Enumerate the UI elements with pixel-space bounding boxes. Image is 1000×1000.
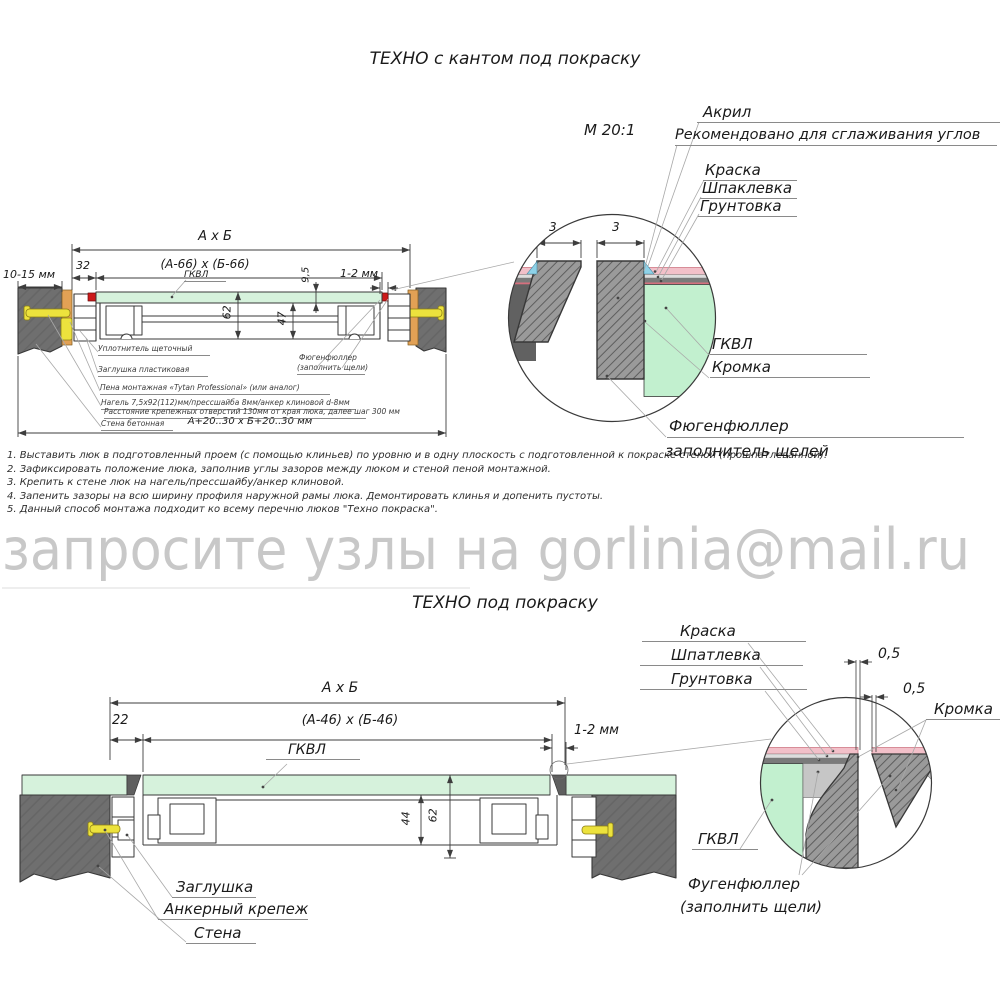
label-primer-bottom: Грунтовка bbox=[640, 671, 807, 690]
label-gkvl-detail-bottom: ГКВЛ bbox=[692, 831, 758, 850]
label-filler-top-1: Фюгенфюллер bbox=[667, 418, 964, 438]
label-gkvl-detail-top: ГКВЛ bbox=[710, 336, 867, 355]
label-filler-top-2: заполнитель щелей bbox=[665, 443, 829, 461]
callout-anchor-bottom: Анкерный крепеж bbox=[158, 901, 308, 920]
label-filler-bottom-1: Фугенфюллер bbox=[688, 876, 800, 893]
callout-foam: Пена монтажная «Tytan Professional» (или… bbox=[100, 384, 330, 395]
bottom-gkvl-wall-right bbox=[566, 775, 676, 795]
callout-wall: Стена бетонная bbox=[101, 420, 173, 431]
detail-gkvl-area bbox=[644, 285, 720, 397]
label-paint-bottom: Краска bbox=[642, 623, 806, 642]
label-primer-top: Грунтовка bbox=[698, 198, 797, 217]
dim-3-right: 3 bbox=[612, 221, 620, 235]
label-gkvl-panel-top: ГКВЛ bbox=[184, 270, 226, 282]
label-filler-bottom-2: (заполнить щели) bbox=[680, 899, 822, 916]
dim-22: 22 bbox=[112, 714, 129, 729]
top-detail-scale: М 20:1 bbox=[584, 122, 635, 139]
callout-spacing: Расстояние крепежных отверстий 130мм от … bbox=[104, 408, 366, 419]
detail-right-profile bbox=[597, 261, 644, 379]
callout-plug-bottom: Заглушка bbox=[172, 879, 256, 898]
dim-62-bottom: 62 bbox=[428, 803, 441, 827]
dim-axb-bottom: А х Б bbox=[300, 680, 380, 696]
top-left-wall bbox=[18, 288, 62, 354]
bottom-left-wall bbox=[20, 795, 110, 882]
dim-05-b: 0,5 bbox=[903, 681, 925, 697]
callout-filler-1: Фюгенфюллер bbox=[299, 354, 357, 363]
dim-10-15: 10-15 мм bbox=[3, 269, 55, 282]
dim-44: 44 bbox=[401, 806, 414, 830]
dim-9-5: 9,5 bbox=[300, 264, 312, 286]
top-gkvl-panel bbox=[96, 292, 382, 303]
dim-axb-top: А х Б bbox=[175, 230, 255, 245]
dim-inner-bottom: (А-46) х (Б-46) bbox=[270, 714, 430, 729]
callout-filler-2: (заполнить щели) bbox=[297, 364, 365, 375]
label-edge-bottom: Кромка bbox=[926, 701, 1000, 720]
bottom-gkvl-door bbox=[143, 775, 550, 795]
detail2-gkvl-area bbox=[758, 764, 803, 870]
label-putty-bottom: Шпатлевка bbox=[640, 647, 803, 666]
label-acryl-note: Рекомендовано для сглаживания углов bbox=[675, 127, 997, 146]
dim-47: 47 bbox=[277, 306, 290, 330]
bottom-plug bbox=[118, 820, 134, 840]
watermark: запросите узлы на gorlinia@mail.ru bbox=[2, 517, 970, 583]
drawing-canvas bbox=[0, 0, 1000, 1000]
dim-62-top: 62 bbox=[222, 300, 235, 324]
dim-1-2-bottom: 1-2 мм bbox=[574, 724, 619, 739]
label-gkvl-panel-bottom: ГКВЛ bbox=[266, 742, 360, 760]
label-acryl: Акрил bbox=[697, 104, 1000, 123]
bottom-right-wall bbox=[592, 795, 676, 880]
dim-05-a: 0,5 bbox=[878, 646, 900, 662]
bottom-left-bevel bbox=[127, 775, 141, 795]
bottom-gkvl-wall-left bbox=[22, 775, 127, 795]
dim-32: 32 bbox=[76, 260, 90, 273]
callout-seal: Уплотнитель щеточный bbox=[98, 345, 210, 356]
dim-3-left: 3 bbox=[549, 221, 557, 235]
bottom-title: ТЕХНО под покраску bbox=[305, 594, 705, 614]
callout-plug: Заглушка пластиковая bbox=[98, 366, 208, 377]
bottom-section-view bbox=[20, 775, 676, 882]
top-title: ТЕХНО с кантом под покраску bbox=[305, 50, 705, 70]
top-left-red-marker bbox=[88, 293, 96, 301]
dim-1-2-top: 1-2 мм bbox=[340, 268, 378, 281]
label-edge-top: Кромка bbox=[710, 359, 870, 378]
callout-wall-bottom: Стена bbox=[186, 925, 256, 944]
